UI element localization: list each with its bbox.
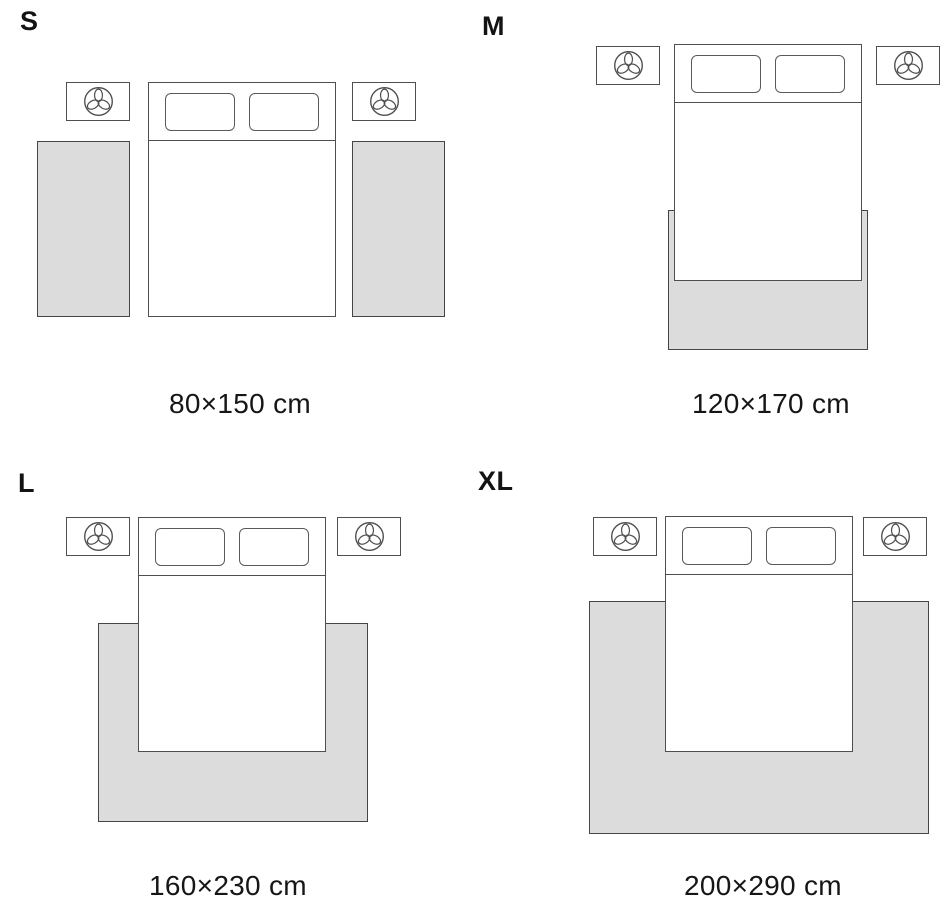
plant-icon [880, 521, 911, 552]
plant-icon [354, 521, 385, 552]
pillow-left [165, 93, 235, 131]
pillow-right [775, 55, 845, 93]
panel-l: L [0, 450, 475, 900]
bed-top-view [665, 516, 853, 752]
pillow-left [155, 528, 225, 566]
pillow-left [682, 527, 752, 565]
nightstand-right [352, 82, 416, 121]
size-letter-xl: XL [478, 468, 514, 495]
bed-top-view [138, 517, 326, 752]
headboard [666, 517, 852, 575]
nightstand-left [596, 46, 660, 85]
nightstand-right [337, 517, 401, 556]
pillow-left [691, 55, 761, 93]
plant-icon [369, 86, 400, 117]
rug-dimensions-label: 160×230 cm [78, 871, 378, 902]
nightstand-left [66, 517, 130, 556]
headboard [149, 83, 335, 141]
size-letter-m: M [482, 13, 505, 40]
rug-dimensions-label: 200×290 cm [613, 871, 913, 902]
headboard [139, 518, 325, 576]
plant-icon [613, 50, 644, 81]
size-letter-l: L [18, 470, 35, 497]
plant-icon [610, 521, 641, 552]
panel-m: M [475, 0, 950, 450]
size-letter-s: S [20, 8, 39, 35]
plant-icon [83, 521, 114, 552]
rug-dimensions-label: 120×170 cm [621, 389, 921, 420]
rug-size-guide: S [0, 0, 950, 900]
rug-dimensions-label: 80×150 cm [90, 389, 390, 420]
pillow-right [249, 93, 319, 131]
pillow-right [766, 527, 836, 565]
pillow-right [239, 528, 309, 566]
plant-icon [83, 86, 114, 117]
bed-top-view [674, 44, 862, 281]
headboard [675, 45, 861, 103]
nightstand-left [66, 82, 130, 121]
plant-icon [893, 50, 924, 81]
nightstand-right [876, 46, 940, 85]
bed-top-view [148, 82, 336, 317]
panel-s: S [0, 0, 475, 450]
rug-runner-left [37, 141, 130, 317]
panel-xl: XL [475, 450, 950, 900]
nightstand-right [863, 517, 927, 556]
nightstand-left [593, 517, 657, 556]
rug-runner-right [352, 141, 445, 317]
